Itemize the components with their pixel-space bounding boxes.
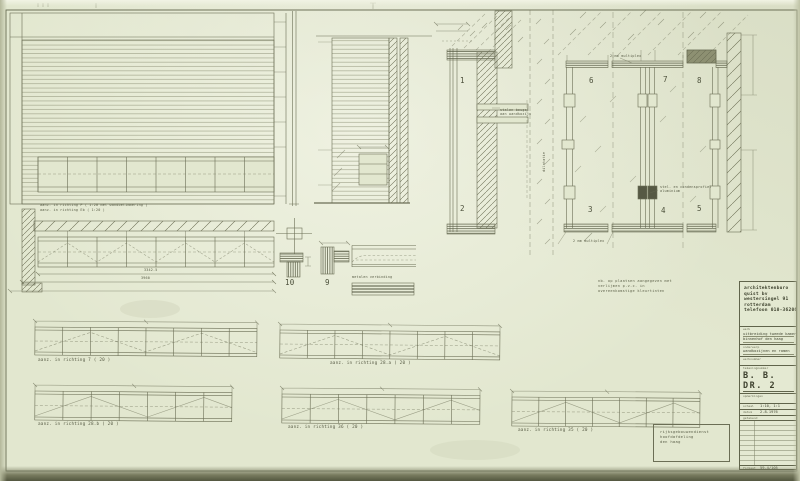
dimension-label: 3342.5 <box>144 269 157 272</box>
revision-rows <box>740 421 796 466</box>
drawing-linework <box>0 0 800 481</box>
field-tekeningnummer: tekeningnummer B. B. DR. 2 <box>740 366 796 394</box>
detail-callout-6: 6 <box>589 77 594 85</box>
drawing-sheet: aanz. in richting P ( 1:20 met wandbetim… <box>0 0 800 481</box>
firm-street: westersingel 91 <box>744 297 794 303</box>
field-werk-value-2: binnenhof den haag <box>743 337 794 343</box>
annotation-metalen: metalen verbinding <box>352 276 392 279</box>
annotation-multiplex-top: 2 mm multiplex <box>610 55 641 58</box>
field-datum-label: datum <box>740 410 760 415</box>
detail-callout-8: 8 <box>697 77 702 85</box>
detail-callout-10: 10 <box>285 279 294 287</box>
annotation-dilatatie: dilatatie <box>543 152 546 172</box>
note-line-3: overeenkomstige kleurtinten <box>598 290 665 294</box>
annotation-profiel-2: aluminium <box>660 190 680 193</box>
authority-stamp: rijksgebouwendienst hoofdafdeling den ha… <box>653 424 730 462</box>
detail-callout-3: 3 <box>588 206 593 214</box>
firm-address: architektenburo quist bv westersingel 91… <box>740 282 796 327</box>
title-block: architektenburo quist bv westersingel 91… <box>739 281 797 470</box>
field-werknummer-label: werknummer <box>743 358 794 362</box>
stamp-line-3: den haag <box>660 439 729 444</box>
field-datum-value: 2.8.1976 <box>760 410 778 415</box>
dimension-label: 3960 <box>141 277 150 280</box>
strip-caption-28a: aanz. in richting 28.a ( 20 ) <box>330 362 411 366</box>
strip-caption-36: aanz. in richting 36 ( 20 ) <box>288 426 363 430</box>
detail-callout-9: 9 <box>325 279 330 287</box>
field-onderwerp-value: wandkozijnen en ramen <box>743 349 794 355</box>
field-opmerkingen-label: opmerkingen <box>743 395 794 399</box>
strip-caption-28b: aanz. in richting 28.b ( 20 ) <box>38 423 119 427</box>
detail-callout-1: 1 <box>460 77 465 85</box>
annotation-beugel-2: aan wandkozijn <box>500 113 531 116</box>
detail-callout-4: 4 <box>661 207 666 215</box>
strip-caption-7: aanz. in richting 7 ( 20 ) <box>38 359 110 363</box>
detail-callout-7: 7 <box>663 76 668 84</box>
elevation-caption-1: aanz. in richting P ( 1:20 met wandbetim… <box>40 204 148 207</box>
detail-callout-2: 2 <box>460 205 465 213</box>
firm-name: architektenburo <box>744 286 794 292</box>
drawing-number: B. B. DR. 2 <box>743 371 794 392</box>
detail-callout-5: 5 <box>697 205 702 213</box>
elevation-caption-2: aanz. in richting Eb ( 1:20 ) <box>40 209 105 212</box>
field-formaat: formaat 59,4/105 <box>740 466 796 470</box>
strip-caption-35: aanz. in richting 35 ( 20 ) <box>518 429 593 433</box>
field-onderwerp: onderwerp wandkozijnen en ramen <box>740 345 796 357</box>
annotation-multiplex-bottom: 2 mm multiplex <box>573 240 604 243</box>
field-schaal-value: 1:10, 1:1 <box>760 404 780 409</box>
field-formaat-label: formaat <box>740 466 760 470</box>
field-opmerkingen: opmerkingen <box>740 394 796 404</box>
field-formaat-value: 59,4/105 <box>760 466 778 470</box>
field-werk: werk uitbreiding tweede kamer binnenhof … <box>740 327 796 345</box>
firm-phone: telefoon 010-362066 <box>744 308 794 314</box>
field-schaal-label: schaal <box>740 404 760 409</box>
field-werknummer: werknummer <box>740 357 796 366</box>
field-getekend-label: getekend <box>740 416 760 421</box>
